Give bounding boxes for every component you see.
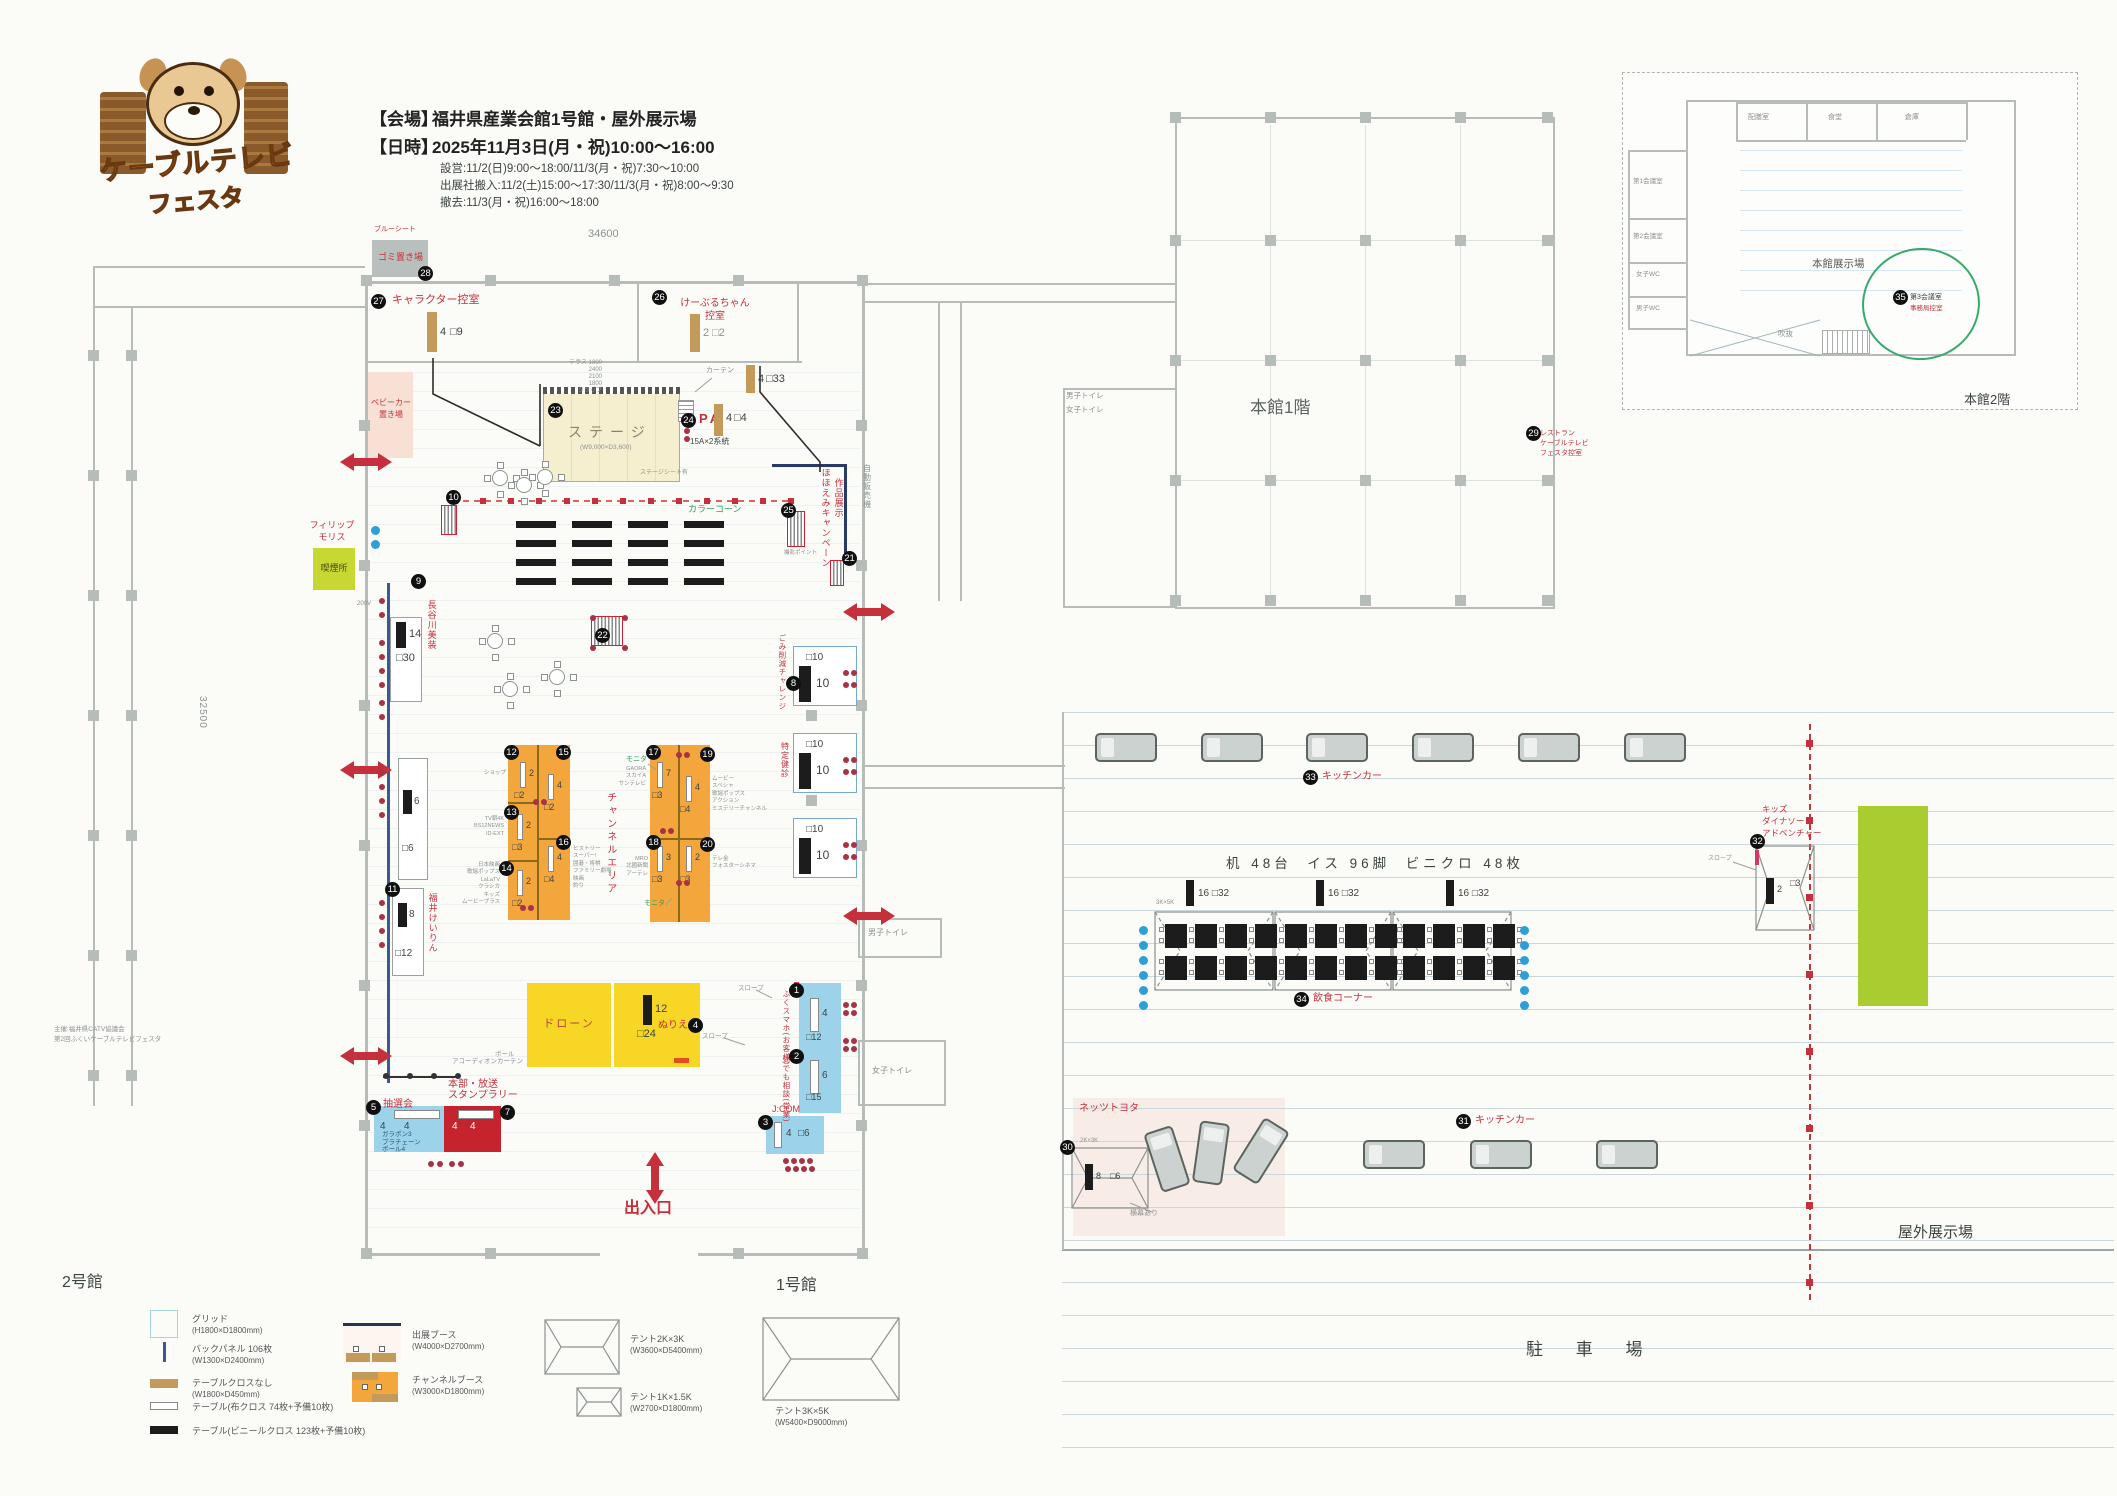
pa-outlet-bar: 4 bbox=[726, 412, 732, 425]
dining-chair bbox=[1219, 970, 1224, 975]
chair-dot bbox=[590, 645, 596, 651]
chair bbox=[542, 461, 549, 468]
parking-line bbox=[1062, 811, 2114, 812]
booth-label: 特定健診 bbox=[780, 742, 789, 790]
keirin-label: 福井けいりん bbox=[427, 893, 438, 975]
dining-chair bbox=[1457, 938, 1462, 943]
dining-chair bbox=[1279, 959, 1284, 964]
cone-marker bbox=[536, 498, 542, 504]
channel-name-list: テレ金 フォスターシネマ bbox=[712, 856, 784, 871]
parking-line bbox=[1062, 1108, 2114, 1109]
channel-bar-count: 3 bbox=[666, 852, 671, 863]
floor-line bbox=[368, 581, 860, 582]
floor-line bbox=[368, 733, 860, 734]
badge-35: 35 bbox=[1893, 290, 1908, 305]
dining-chair bbox=[1427, 970, 1432, 975]
booth-sq-count: □10 bbox=[806, 824, 823, 836]
column bbox=[1170, 475, 1181, 486]
event-logo: ケーブルテレビ フェスタ bbox=[92, 50, 302, 235]
chair-dot bbox=[783, 1158, 789, 1164]
booth-keirin bbox=[392, 888, 424, 976]
channel-table bbox=[520, 762, 526, 788]
channel-name-list: TV朝4K BS12NEWS ID-EXT bbox=[458, 816, 504, 838]
column bbox=[733, 275, 744, 286]
dining-chair bbox=[1397, 959, 1402, 964]
dining-chair bbox=[1427, 959, 1432, 964]
chair-dot bbox=[851, 842, 857, 848]
kablechan-table bbox=[690, 314, 700, 352]
kitchen-car bbox=[1518, 733, 1580, 762]
inset-floor-line bbox=[1740, 210, 1962, 211]
chair-dot bbox=[843, 842, 849, 848]
dining-chair bbox=[1219, 927, 1224, 932]
soudan-label: 何でも相談(営業) bbox=[781, 1056, 790, 1126]
chair-dot bbox=[379, 598, 385, 604]
legend-size: (W5400×D9000mm) bbox=[775, 1418, 847, 1427]
dining-table bbox=[1165, 956, 1187, 980]
dining-chair bbox=[1189, 970, 1194, 975]
table-vinyl bbox=[572, 559, 612, 566]
logo-dog-nose bbox=[188, 106, 200, 115]
wc-women-top-label: 女子トイレ bbox=[1066, 406, 1104, 415]
outdoor-green-area bbox=[1858, 806, 1928, 1006]
chair bbox=[508, 482, 515, 489]
wall bbox=[865, 283, 1175, 285]
badge-channel: 17 bbox=[646, 745, 661, 760]
hq-n1: 4 bbox=[452, 1121, 458, 1133]
column bbox=[1455, 235, 1466, 246]
chair bbox=[521, 469, 528, 476]
column bbox=[1170, 112, 1181, 123]
booth-bar-count: 10 bbox=[816, 676, 829, 690]
wall bbox=[1876, 102, 1878, 140]
column bbox=[806, 795, 817, 806]
nurie-table bbox=[643, 995, 652, 1025]
restaurant-line1: レストラン bbox=[1540, 430, 1575, 438]
wall bbox=[1736, 102, 1738, 140]
dining-chair bbox=[1309, 938, 1314, 943]
car-cab bbox=[1630, 738, 1643, 757]
chair bbox=[570, 674, 577, 681]
blue-dot bbox=[1139, 941, 1148, 950]
organizer-line2: 第2回ふくいケーブルテレビフェスタ bbox=[54, 1036, 161, 1044]
dining-chair bbox=[1487, 970, 1492, 975]
dining-chair bbox=[1279, 927, 1284, 932]
smile-campaign-label1: ほほえみキャンペーン bbox=[820, 468, 831, 564]
nurie-sq: □24 bbox=[637, 1028, 656, 1041]
dining-table bbox=[1433, 956, 1455, 980]
wall bbox=[1966, 102, 1968, 140]
column bbox=[126, 830, 137, 841]
chair-dot bbox=[809, 1166, 815, 1172]
legend-label: 出展ブース bbox=[412, 1330, 457, 1341]
column bbox=[88, 350, 99, 361]
badge-3: 3 bbox=[758, 1115, 773, 1130]
column bbox=[1170, 355, 1181, 366]
inset-floor-line bbox=[1740, 150, 1962, 151]
badge-channel: 14 bbox=[499, 861, 514, 876]
chair bbox=[507, 673, 514, 680]
stanchion-post bbox=[407, 1073, 413, 1079]
chair-dot bbox=[379, 682, 385, 688]
chair-dot bbox=[851, 1002, 857, 1008]
channel-table bbox=[686, 846, 692, 872]
chair bbox=[558, 474, 565, 481]
channel-name-list: ムービー スペシャ 歌謡ポップス アクション ミステリーチャンネル bbox=[712, 776, 784, 813]
booth-sq-count: □10 bbox=[806, 739, 823, 751]
car-cab bbox=[1476, 1145, 1489, 1164]
chair-dot bbox=[799, 1158, 805, 1164]
car-cab bbox=[1369, 1145, 1382, 1164]
parking-line bbox=[1062, 778, 2114, 779]
stanchion-post bbox=[455, 1073, 461, 1079]
column bbox=[1542, 475, 1553, 486]
netz-tent-size: 2K×3K bbox=[1080, 1138, 1098, 1145]
legend-label: テーブル(ビニールクロス 123枚+予備10枚) bbox=[192, 1426, 365, 1437]
chara-room-label: キャラクター控室 bbox=[392, 294, 480, 307]
wall bbox=[1686, 100, 1688, 356]
booth-label: ごみ削減チャレンジ bbox=[777, 634, 786, 730]
booth-21-hatch bbox=[830, 560, 844, 586]
table-vinyl bbox=[684, 559, 724, 566]
chair-dot bbox=[458, 1161, 464, 1167]
chair bbox=[494, 686, 501, 693]
blue-dot bbox=[1520, 971, 1529, 980]
wall bbox=[858, 1104, 946, 1106]
legend-size: (W3000×D1800mm) bbox=[412, 1387, 484, 1396]
dining-chair bbox=[1369, 938, 1374, 943]
movein-schedule: 出展社搬入:11/2(土)15:00〜17:30/11/3(月・祝)8:00〜9… bbox=[440, 180, 734, 194]
slope-label-1: スロープ bbox=[738, 985, 764, 993]
wall bbox=[1628, 150, 1630, 330]
dining-table bbox=[1255, 956, 1277, 980]
chair bbox=[554, 661, 561, 668]
boundary-marker bbox=[1806, 971, 1813, 978]
venue-value: 福井県産業会館1号館・屋外展示場 bbox=[432, 110, 696, 130]
column bbox=[1542, 112, 1553, 123]
dining-table bbox=[1285, 956, 1307, 980]
legend-backpanel-swatch bbox=[163, 1342, 166, 1362]
cone-marker bbox=[564, 498, 570, 504]
channel-sq-count: □3 bbox=[512, 842, 522, 853]
wall bbox=[858, 1040, 860, 1106]
hasegawa-bar: 14 bbox=[409, 628, 421, 641]
parking-line bbox=[1062, 877, 2114, 878]
main2f-label: 本館2階 bbox=[1964, 392, 2010, 407]
chair-dot bbox=[379, 770, 385, 776]
column bbox=[1455, 112, 1466, 123]
dining-grp-3: 16 □32 bbox=[1458, 888, 1489, 900]
dining-chair bbox=[1397, 938, 1402, 943]
boundary-marker bbox=[1806, 817, 1813, 824]
floor-line bbox=[368, 790, 860, 791]
channel-block-left-divider bbox=[537, 745, 539, 920]
jcom-label: J:COM bbox=[772, 1104, 800, 1115]
wc-men-top-label: 男子トイレ bbox=[1066, 392, 1104, 401]
round-table bbox=[549, 669, 565, 685]
channel-table bbox=[517, 814, 523, 840]
dining-chair bbox=[1249, 970, 1254, 975]
wall bbox=[1063, 606, 1175, 608]
badge-22: 22 bbox=[595, 628, 610, 643]
booth-left-mid bbox=[398, 758, 428, 880]
column bbox=[88, 830, 99, 841]
wall bbox=[944, 1040, 946, 1106]
dining-table bbox=[1403, 956, 1425, 980]
chair-dot bbox=[379, 914, 385, 920]
chair-dot bbox=[541, 799, 547, 805]
wall bbox=[797, 283, 799, 361]
booth-10-hatch bbox=[441, 505, 457, 535]
channel-bar-count: 2 bbox=[526, 820, 531, 831]
column bbox=[1542, 355, 1553, 366]
colorcone-label: カラーコーン bbox=[688, 504, 742, 515]
pole-label: ポール bbox=[495, 1051, 515, 1059]
chair-dot bbox=[668, 828, 674, 834]
chair-dot bbox=[428, 1161, 434, 1167]
chair-dot bbox=[379, 784, 385, 790]
dining-bar-3 bbox=[1446, 880, 1454, 906]
column bbox=[856, 700, 867, 711]
chair-dot bbox=[660, 828, 666, 834]
column bbox=[856, 1120, 867, 1131]
wall bbox=[938, 301, 940, 601]
fukusma-bar1: 4 bbox=[822, 1008, 828, 1020]
dining-chair bbox=[1279, 970, 1284, 975]
column bbox=[1542, 595, 1553, 606]
dining-chair bbox=[1309, 959, 1314, 964]
restaurant-line2: ケーブルテレビ bbox=[1540, 440, 1589, 448]
column bbox=[856, 840, 867, 851]
column bbox=[806, 710, 817, 721]
column bbox=[359, 1120, 370, 1131]
badge-9: 9 bbox=[411, 574, 426, 589]
chair-dot bbox=[851, 1046, 857, 1052]
vending-machine-label: 自動販売機 bbox=[862, 464, 871, 509]
lot-boundary-line bbox=[1062, 1249, 2114, 1251]
fukusma-sq1: □12 bbox=[806, 1032, 821, 1043]
cone-marker bbox=[480, 498, 486, 504]
legend-label: テーブルクロスなし bbox=[192, 1378, 272, 1389]
column bbox=[1265, 235, 1276, 246]
badge-24: 24 bbox=[681, 413, 696, 428]
chair-dot bbox=[851, 670, 857, 676]
badge-2: 2 bbox=[789, 1049, 804, 1064]
floor-line bbox=[368, 980, 860, 981]
dining-table bbox=[1165, 924, 1187, 948]
badge-31: 31 bbox=[1456, 1114, 1471, 1129]
parking-line bbox=[1062, 976, 2114, 977]
chair-dot bbox=[379, 714, 385, 720]
dining-chair bbox=[1219, 938, 1224, 943]
dino-bar: 2 bbox=[1777, 884, 1782, 895]
legend-label: テント2K×3K bbox=[630, 1334, 684, 1345]
dining-chair bbox=[1487, 959, 1492, 964]
nurie-label: ぬりえ bbox=[658, 1020, 688, 1032]
chair bbox=[542, 490, 549, 497]
column bbox=[485, 275, 496, 286]
channel-name-list: ショップ bbox=[468, 770, 506, 777]
slope-label-2: スロープ bbox=[702, 1033, 728, 1041]
chair-dot bbox=[379, 612, 385, 618]
column bbox=[1265, 355, 1276, 366]
blue-dot bbox=[1520, 956, 1529, 965]
dining-grp-1: 16 □32 bbox=[1198, 888, 1229, 900]
inset-room-top2: 食堂 bbox=[1828, 114, 1842, 122]
stage-size: (W9,000×D3,600) bbox=[580, 444, 632, 452]
dining-table bbox=[1315, 924, 1337, 948]
dining-chair bbox=[1189, 927, 1194, 932]
legend-label: テント3K×5K bbox=[775, 1406, 829, 1417]
cone-marker bbox=[732, 498, 738, 504]
cone-marker bbox=[760, 498, 766, 504]
legend-whitebar-swatch bbox=[150, 1402, 178, 1410]
badge-7: 7 bbox=[500, 1105, 515, 1120]
legend-booth-chair1 bbox=[353, 1346, 359, 1352]
jcom-sq: □6 bbox=[798, 1128, 810, 1140]
chair-dot bbox=[851, 682, 857, 688]
blue-dot bbox=[1520, 986, 1529, 995]
legend-channel-diagram bbox=[352, 1372, 398, 1402]
blue-dot bbox=[1520, 941, 1529, 950]
round-table bbox=[537, 469, 553, 485]
channel-table bbox=[548, 774, 554, 800]
badge-8: 8 bbox=[786, 676, 801, 691]
channel-name-list: MRO 北國新聞 アーテレ bbox=[610, 856, 648, 878]
fukusma-table bbox=[810, 998, 819, 1032]
wall bbox=[1628, 328, 1686, 330]
red-boundary-line bbox=[1809, 724, 1811, 1300]
car-cab bbox=[1259, 1124, 1283, 1146]
blue-dot bbox=[1139, 926, 1148, 935]
chair-dot bbox=[851, 757, 857, 763]
monitor-label-1: モニタ bbox=[626, 756, 647, 764]
column bbox=[1360, 112, 1371, 123]
dino-line3: アドベンチャー bbox=[1762, 828, 1821, 838]
badge-channel: 15 bbox=[556, 745, 571, 760]
table-vinyl bbox=[572, 578, 612, 585]
chair bbox=[497, 462, 504, 469]
column bbox=[1360, 235, 1371, 246]
chair-dot bbox=[843, 1010, 849, 1016]
blue-dot bbox=[1139, 956, 1148, 965]
column bbox=[361, 275, 372, 286]
column bbox=[88, 1070, 99, 1081]
kitchen-car bbox=[1624, 733, 1686, 762]
column bbox=[126, 590, 137, 601]
chair bbox=[521, 498, 528, 505]
column bbox=[88, 710, 99, 721]
chair-dot bbox=[379, 900, 385, 906]
wall bbox=[865, 765, 1065, 767]
inset-room-top3: 倉庫 bbox=[1905, 114, 1919, 122]
channel-block-right-divider bbox=[678, 745, 680, 922]
round-table bbox=[492, 470, 508, 486]
badge-channel: 19 bbox=[700, 747, 715, 762]
dining-chair bbox=[1309, 927, 1314, 932]
chair bbox=[492, 654, 499, 661]
car-cab bbox=[1602, 1145, 1615, 1164]
accordion-curtain-label: アコーディオンカーテン bbox=[452, 1058, 523, 1066]
chair-dot bbox=[807, 1158, 813, 1164]
dining-chair bbox=[1249, 959, 1254, 964]
floor-line bbox=[368, 904, 860, 905]
nurie-mark bbox=[674, 1058, 689, 1063]
dining-table bbox=[1463, 924, 1485, 948]
teardown-schedule: 撤去:11/3(月・祝)16:00〜18:00 bbox=[440, 197, 599, 211]
column bbox=[857, 1248, 868, 1259]
chair bbox=[484, 475, 491, 482]
channel-bar-count: 2 bbox=[526, 876, 531, 887]
drone-label: ドローン bbox=[527, 1018, 611, 1031]
column bbox=[1265, 112, 1276, 123]
floor-line bbox=[368, 714, 860, 715]
column bbox=[88, 950, 99, 961]
wall bbox=[365, 1253, 600, 1256]
column bbox=[359, 700, 370, 711]
column bbox=[126, 470, 137, 481]
dining-table bbox=[1225, 956, 1247, 980]
channel-table bbox=[548, 846, 554, 872]
dining-chair bbox=[1369, 970, 1374, 975]
chair-dot bbox=[843, 1002, 849, 1008]
chair-dot bbox=[801, 1166, 807, 1172]
table-vinyl bbox=[516, 521, 556, 528]
backpanel-line bbox=[387, 583, 390, 1083]
wall bbox=[131, 306, 133, 1106]
chair-dot bbox=[684, 428, 690, 434]
chair bbox=[507, 702, 514, 709]
blue-dot bbox=[1139, 986, 1148, 995]
dim-top: 34600 bbox=[588, 228, 619, 241]
booth-bar-count: 10 bbox=[816, 763, 829, 777]
channel-name-list: 日本映画 歌謡ポップス LaLaTV クラシカ キッズ ムービープラス bbox=[454, 862, 500, 907]
wall bbox=[858, 1040, 946, 1042]
dino-slope-label: スロープ bbox=[1708, 856, 1732, 863]
column bbox=[856, 420, 867, 431]
dining-chair bbox=[1159, 938, 1164, 943]
stanchion-line bbox=[383, 1076, 457, 1078]
chair-dot bbox=[590, 615, 596, 621]
wall bbox=[1553, 117, 1555, 609]
soudan-bar2: 6 bbox=[822, 1070, 828, 1082]
car-cab bbox=[1203, 1127, 1225, 1143]
boundary-marker bbox=[1806, 1279, 1813, 1286]
column bbox=[1265, 595, 1276, 606]
channel-table bbox=[657, 762, 663, 788]
wall bbox=[1063, 388, 1175, 390]
dining-chair bbox=[1159, 927, 1164, 932]
organizer-line1: 主催:福井県CATV協議会 bbox=[54, 1026, 125, 1034]
chara-outlet-bar: 4 bbox=[440, 326, 446, 339]
chair-dot bbox=[379, 928, 385, 934]
dining-chair bbox=[1339, 938, 1344, 943]
wall bbox=[93, 266, 95, 1106]
legend-label: テーブル(布クロス 74枚+予備10枚) bbox=[192, 1402, 333, 1413]
badge-10: 10 bbox=[446, 490, 461, 505]
chair bbox=[492, 625, 499, 632]
jcom-table bbox=[774, 1122, 782, 1148]
parking-line bbox=[1062, 1207, 2114, 1208]
dino-sq: □3 bbox=[1790, 878, 1800, 889]
inset-floor-line bbox=[1740, 230, 1962, 231]
legend-ch-chair2 bbox=[376, 1384, 382, 1390]
chair-dot bbox=[851, 854, 857, 860]
soudan-sq2: □15 bbox=[806, 1092, 821, 1103]
car-cab bbox=[1418, 738, 1431, 757]
channel-sq-count: □4 bbox=[544, 874, 554, 885]
logo-dog-eye-l bbox=[174, 86, 184, 96]
